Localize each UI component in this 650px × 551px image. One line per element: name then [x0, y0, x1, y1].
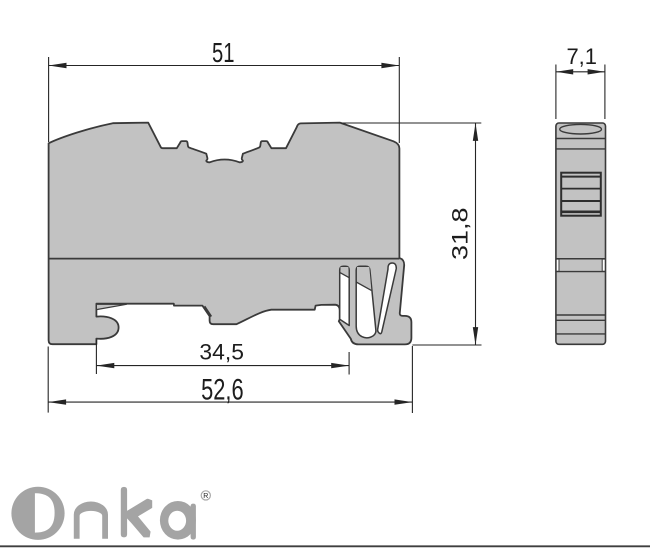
svg-text:7,1: 7,1 — [566, 44, 597, 69]
svg-text:52,6: 52,6 — [201, 373, 244, 406]
svg-text:34,5: 34,5 — [199, 340, 244, 365]
svg-text:R: R — [203, 493, 208, 500]
svg-text:31,8: 31,8 — [448, 208, 473, 260]
svg-text:51: 51 — [212, 37, 235, 68]
